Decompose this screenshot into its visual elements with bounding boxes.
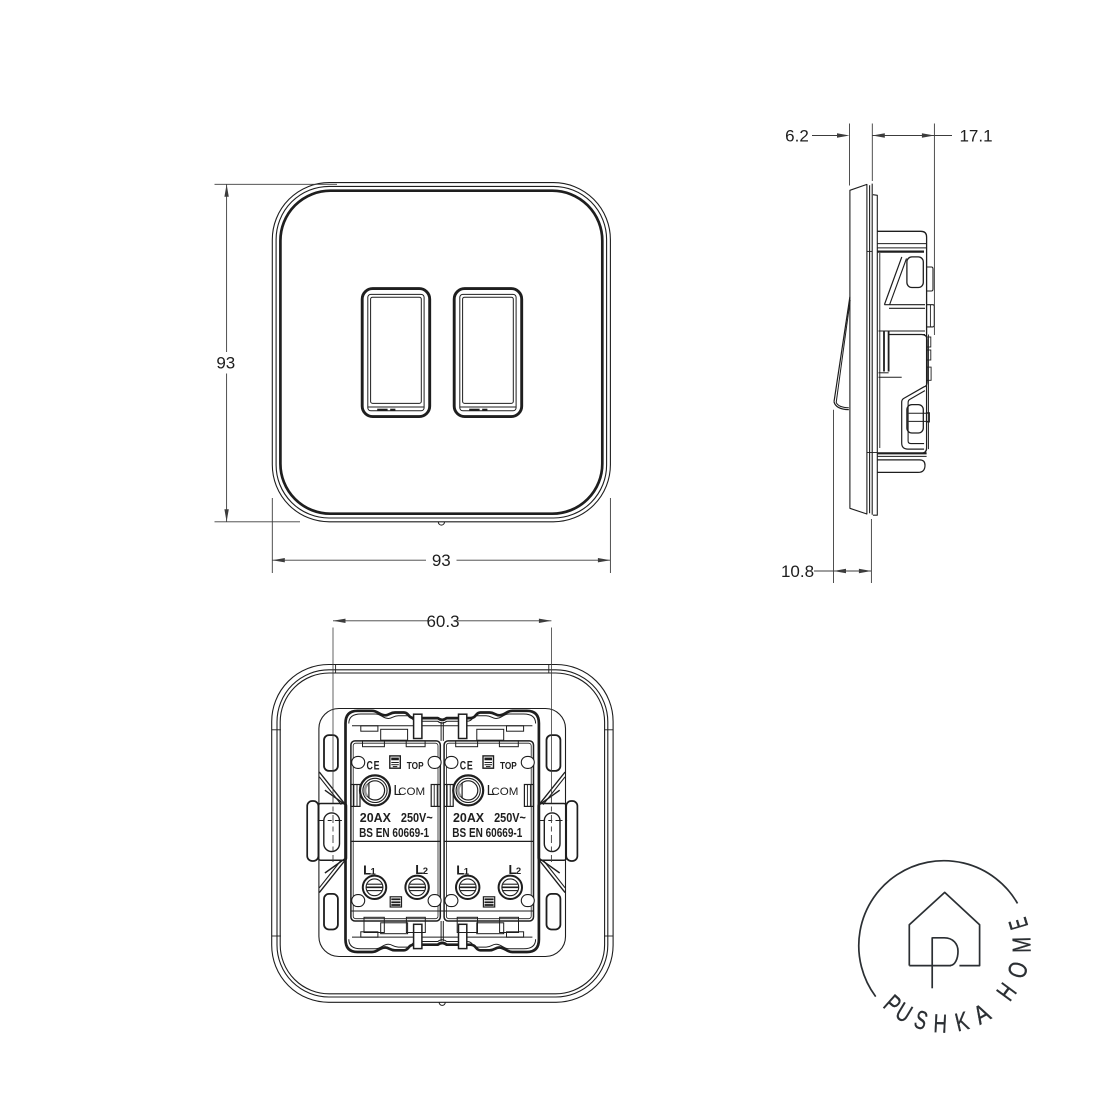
svg-text:10.8: 10.8 [781,562,814,581]
svg-text:O: O [1001,958,1034,982]
svg-text:250V~: 250V~ [401,810,433,825]
svg-text:A: A [968,997,996,1031]
svg-text:93: 93 [432,551,451,570]
svg-text:2: 2 [423,866,428,877]
svg-text:17.1: 17.1 [959,127,992,146]
svg-text:60.3: 60.3 [426,612,459,631]
svg-text:2: 2 [516,866,521,877]
svg-text:BS EN 60669-1: BS EN 60669-1 [359,825,429,840]
svg-text:COM: COM [398,786,425,798]
svg-text:20AX: 20AX [360,810,391,825]
svg-text:250V~: 250V~ [494,810,526,825]
svg-text:H: H [933,1008,948,1039]
svg-text:E: E [1002,914,1034,933]
svg-text:6.2: 6.2 [785,127,809,146]
svg-text:CE: CE [460,760,474,772]
svg-text:COM: COM [491,786,518,798]
svg-text:H: H [990,977,1022,1006]
svg-text:93: 93 [216,354,235,373]
svg-text:BS EN 60669-1: BS EN 60669-1 [452,825,522,840]
svg-text:M: M [1006,937,1036,953]
svg-text:20AX: 20AX [453,810,484,825]
svg-text:K: K [952,1005,972,1037]
svg-text:CE: CE [367,760,381,772]
svg-text:TOP: TOP [500,761,517,772]
svg-text:TOP: TOP [407,761,424,772]
